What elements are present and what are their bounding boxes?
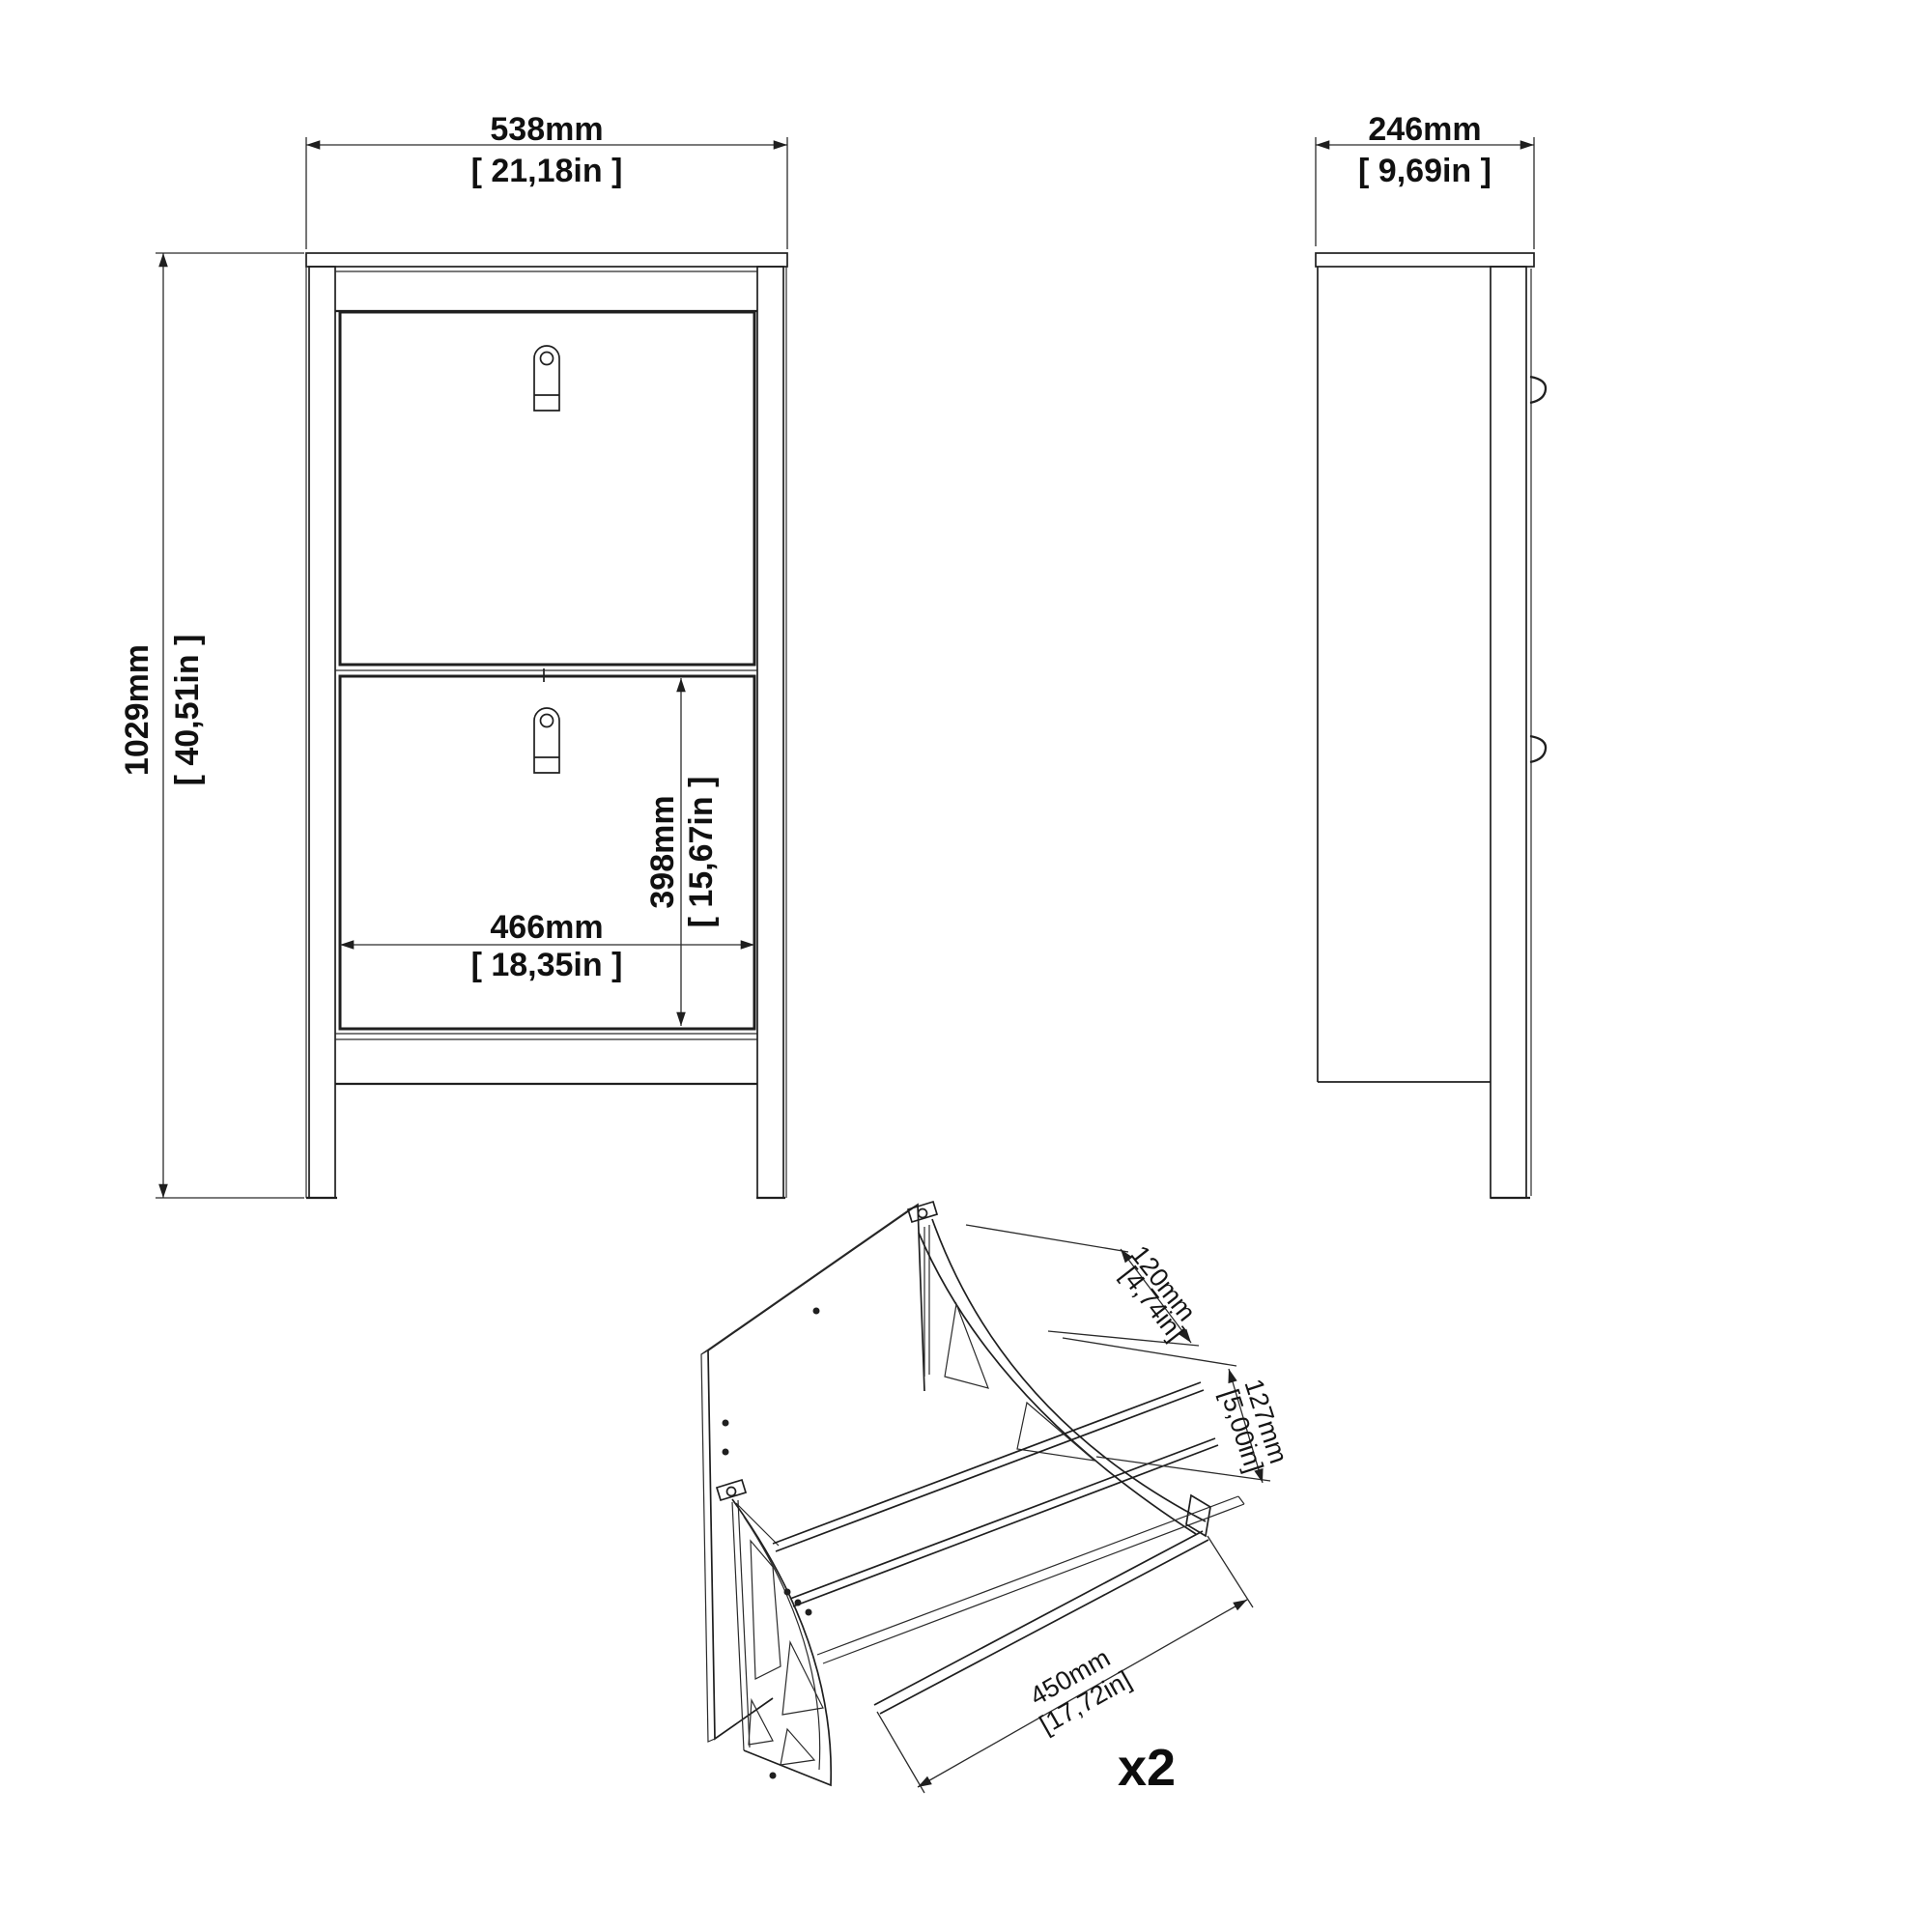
front-handle-2	[534, 708, 559, 773]
iso-panel-screw-dot-1	[813, 1308, 820, 1315]
front-view: 538mm [ 21,18in ] 1029mm [ 40,51in ] 466…	[119, 111, 787, 1198]
iso-panel-screw-dot-3	[723, 1449, 729, 1456]
shoe-cabinet-drawing: 538mm [ 21,18in ] 1029mm [ 40,51in ] 466…	[0, 0, 1932, 1932]
iso-left-bracket-screw-4	[770, 1773, 777, 1779]
front-handle-2-body	[534, 708, 559, 773]
front-handle-1	[534, 346, 559, 411]
iso-left-bracket-cutout-4	[781, 1729, 814, 1765]
iso-panel-screw-dot-2	[723, 1420, 729, 1427]
front-top-panel	[306, 253, 787, 267]
iso-door-panel-outline	[708, 1205, 924, 1739]
detail-quantity-label: x2	[1118, 1739, 1176, 1797]
side-handle-1-profile	[1530, 377, 1546, 403]
iso-left-bracket-cutout-1	[751, 1541, 781, 1679]
front-right-leg	[757, 267, 783, 1198]
front-handle-2-ring	[541, 715, 554, 727]
front-height-dimension: 1029mm [ 40,51in ]	[119, 253, 304, 1198]
front-height-mm-label: 1029mm	[119, 644, 156, 776]
front-inner-width-inch-label: [ 18,35in ]	[471, 947, 623, 983]
front-width-mm-label: 538mm	[490, 111, 603, 148]
side-front-leg	[1491, 267, 1526, 1198]
iso-left-bracket	[717, 1480, 831, 1785]
iso-left-bracket-screw-1	[784, 1589, 791, 1596]
front-width-inch-label: [ 21,18in ]	[471, 153, 623, 189]
detail-flap-width-dimension: 450mm [17,72in]	[877, 1536, 1253, 1793]
side-view: 246mm [ 9,69in ]	[1316, 111, 1546, 1198]
side-depth-inch-label: [ 9,69in ]	[1358, 153, 1492, 189]
front-inner-height-dimension: 398mm [ 15,67in ]	[644, 678, 720, 1026]
front-inner-height-mm-label: 398mm	[644, 795, 681, 908]
side-top-panel	[1316, 253, 1534, 267]
iso-tray-shelf	[773, 1382, 1244, 1714]
side-depth-dimension: 246mm [ 9,69in ]	[1316, 111, 1534, 249]
detail-isometric-view: 120mm [4,74in] 127mm [5,00in] 450mm [17,…	[701, 1202, 1293, 1797]
side-handle-2-profile	[1530, 736, 1546, 762]
iso-right-hinge-pin	[919, 1209, 927, 1218]
front-handle-1-body	[534, 346, 559, 411]
technical-drawing-page: 538mm [ 21,18in ] 1029mm [ 40,51in ] 466…	[0, 0, 1932, 1932]
front-height-inch-label: [ 40,51in ]	[169, 635, 206, 786]
front-width-dimension: 538mm [ 21,18in ]	[306, 111, 787, 249]
front-bottom-strip-lines	[335, 1034, 757, 1039]
side-depth-mm-label: 246mm	[1368, 111, 1481, 148]
iso-left-hinge-plate	[717, 1480, 746, 1500]
iso-left-bracket-outer-curve	[732, 1499, 831, 1785]
detail-flap-depth-dimension: 120mm [4,74in]	[966, 1225, 1202, 1347]
iso-right-bracket-cutout-2	[1017, 1403, 1094, 1461]
iso-right-bracket	[908, 1202, 1210, 1536]
front-handle-1-ring	[541, 353, 554, 365]
iso-left-hinge-pin	[727, 1488, 736, 1496]
front-inner-width-mm-label: 466mm	[490, 909, 603, 946]
front-left-leg	[309, 267, 335, 1198]
iso-left-bracket-screw-3	[806, 1609, 812, 1616]
iso-right-bracket-cutout-1	[945, 1304, 988, 1388]
front-inner-height-inch-label: [ 15,67in ]	[683, 777, 720, 928]
iso-left-hinge-link	[736, 1503, 779, 1546]
iso-left-bracket-back-edge	[732, 1500, 750, 1750]
